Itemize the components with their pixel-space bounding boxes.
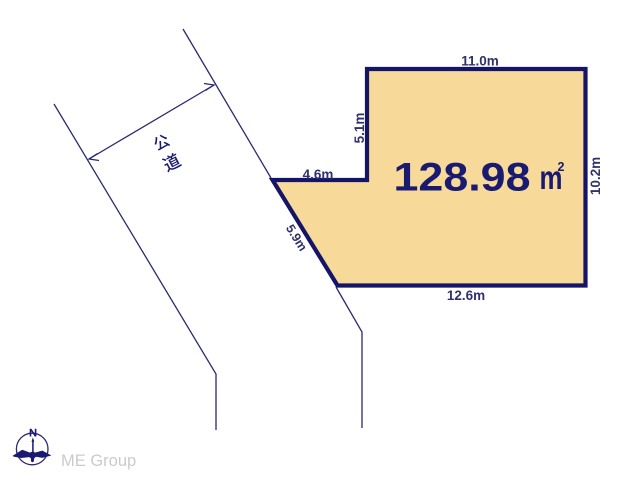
svg-text:5.1m: 5.1m xyxy=(352,113,367,144)
svg-text:11.0m: 11.0m xyxy=(461,54,499,69)
svg-text:4.6m: 4.6m xyxy=(303,167,334,182)
svg-text:128.98: 128.98 xyxy=(394,156,531,200)
svg-text:10.2m: 10.2m xyxy=(588,157,603,195)
svg-text:12.6m: 12.6m xyxy=(447,288,485,303)
svg-text:ME Group: ME Group xyxy=(61,452,136,470)
svg-text:2: 2 xyxy=(558,160,565,174)
